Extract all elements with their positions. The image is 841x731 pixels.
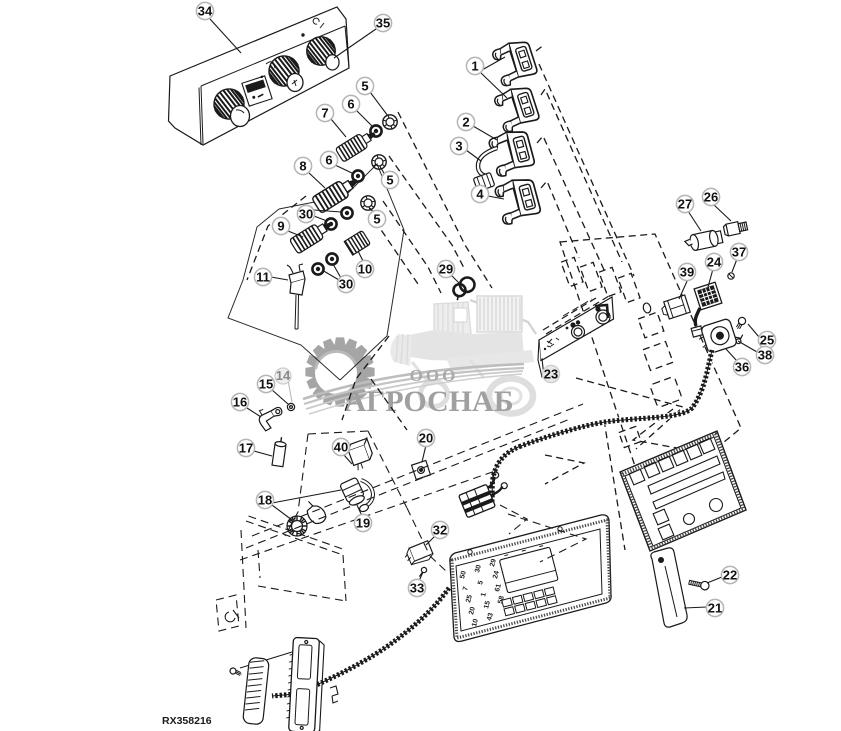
svg-text:17: 17 [239,441,253,456]
svg-text:29: 29 [439,262,453,277]
svg-text:34: 34 [198,4,213,19]
svg-text:5: 5 [373,212,380,227]
svg-text:27: 27 [678,197,692,212]
svg-text:1: 1 [471,59,478,74]
svg-text:22: 22 [723,568,737,583]
svg-text:10: 10 [358,262,372,277]
svg-text:OOO: OOO [410,366,459,385]
svg-text:16: 16 [233,395,247,410]
svg-text:6: 6 [325,153,332,168]
svg-text:18: 18 [258,493,272,508]
svg-text:40: 40 [334,440,348,455]
svg-text:39: 39 [680,265,694,280]
svg-text:24: 24 [707,255,722,270]
svg-text:5: 5 [361,79,368,94]
svg-text:30: 30 [299,207,313,222]
svg-text:7: 7 [321,106,328,121]
svg-text:5: 5 [386,173,393,188]
svg-text:6: 6 [347,97,354,112]
svg-text:14: 14 [276,368,291,383]
svg-text:11: 11 [256,270,270,285]
svg-text:21: 21 [708,601,722,616]
svg-text:3: 3 [455,139,462,154]
svg-text:8: 8 [299,159,306,174]
svg-text:35: 35 [376,16,390,31]
svg-text:19: 19 [356,516,370,531]
svg-text:30: 30 [339,277,353,292]
svg-text:26: 26 [704,190,718,205]
svg-text:23: 23 [544,367,558,382]
svg-text:32: 32 [433,523,447,538]
svg-text:15: 15 [259,377,273,392]
svg-text:АГРОСНАБ: АГРОСНАБ [344,385,513,418]
svg-text:25: 25 [760,333,774,348]
svg-text:36: 36 [735,360,749,375]
svg-text:20: 20 [419,431,433,446]
svg-text:2: 2 [462,115,469,130]
svg-text:38: 38 [758,348,772,363]
svg-text:4: 4 [476,187,484,202]
svg-text:9: 9 [277,219,284,234]
svg-text:RX358216: RX358216 [162,715,212,727]
svg-text:37: 37 [732,245,746,260]
svg-text:33: 33 [410,581,424,596]
